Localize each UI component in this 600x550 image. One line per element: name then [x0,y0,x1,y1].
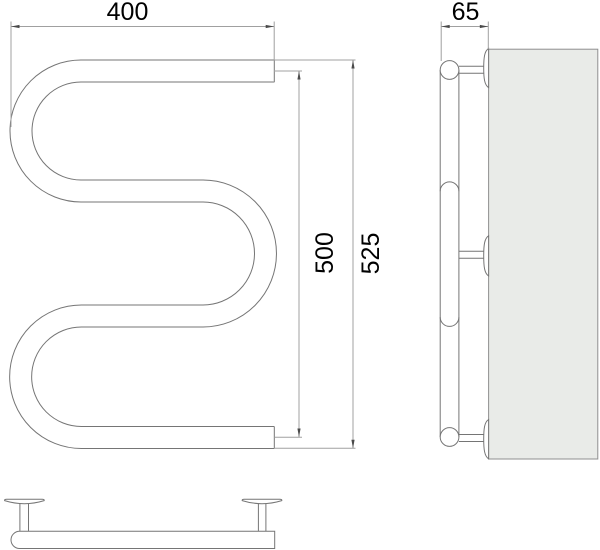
svg-text:500: 500 [311,232,339,274]
svg-text:65: 65 [452,0,480,26]
svg-text:400: 400 [107,0,149,26]
svg-text:525: 525 [357,233,385,275]
